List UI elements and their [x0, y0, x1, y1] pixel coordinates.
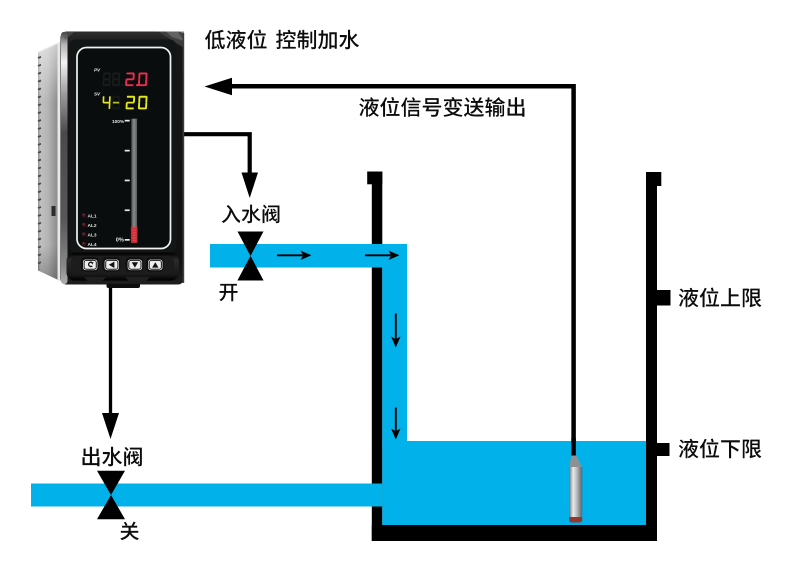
svg-text:AL1: AL1	[88, 213, 97, 219]
svg-text:100%: 100%	[112, 119, 125, 124]
svg-text:0%: 0%	[116, 238, 124, 244]
svg-text:AL4: AL4	[88, 242, 97, 248]
svg-text:PV: PV	[94, 68, 101, 73]
svg-text:AL3: AL3	[88, 232, 97, 238]
svg-text:AL2: AL2	[88, 223, 97, 229]
svg-text:SV: SV	[94, 92, 101, 97]
